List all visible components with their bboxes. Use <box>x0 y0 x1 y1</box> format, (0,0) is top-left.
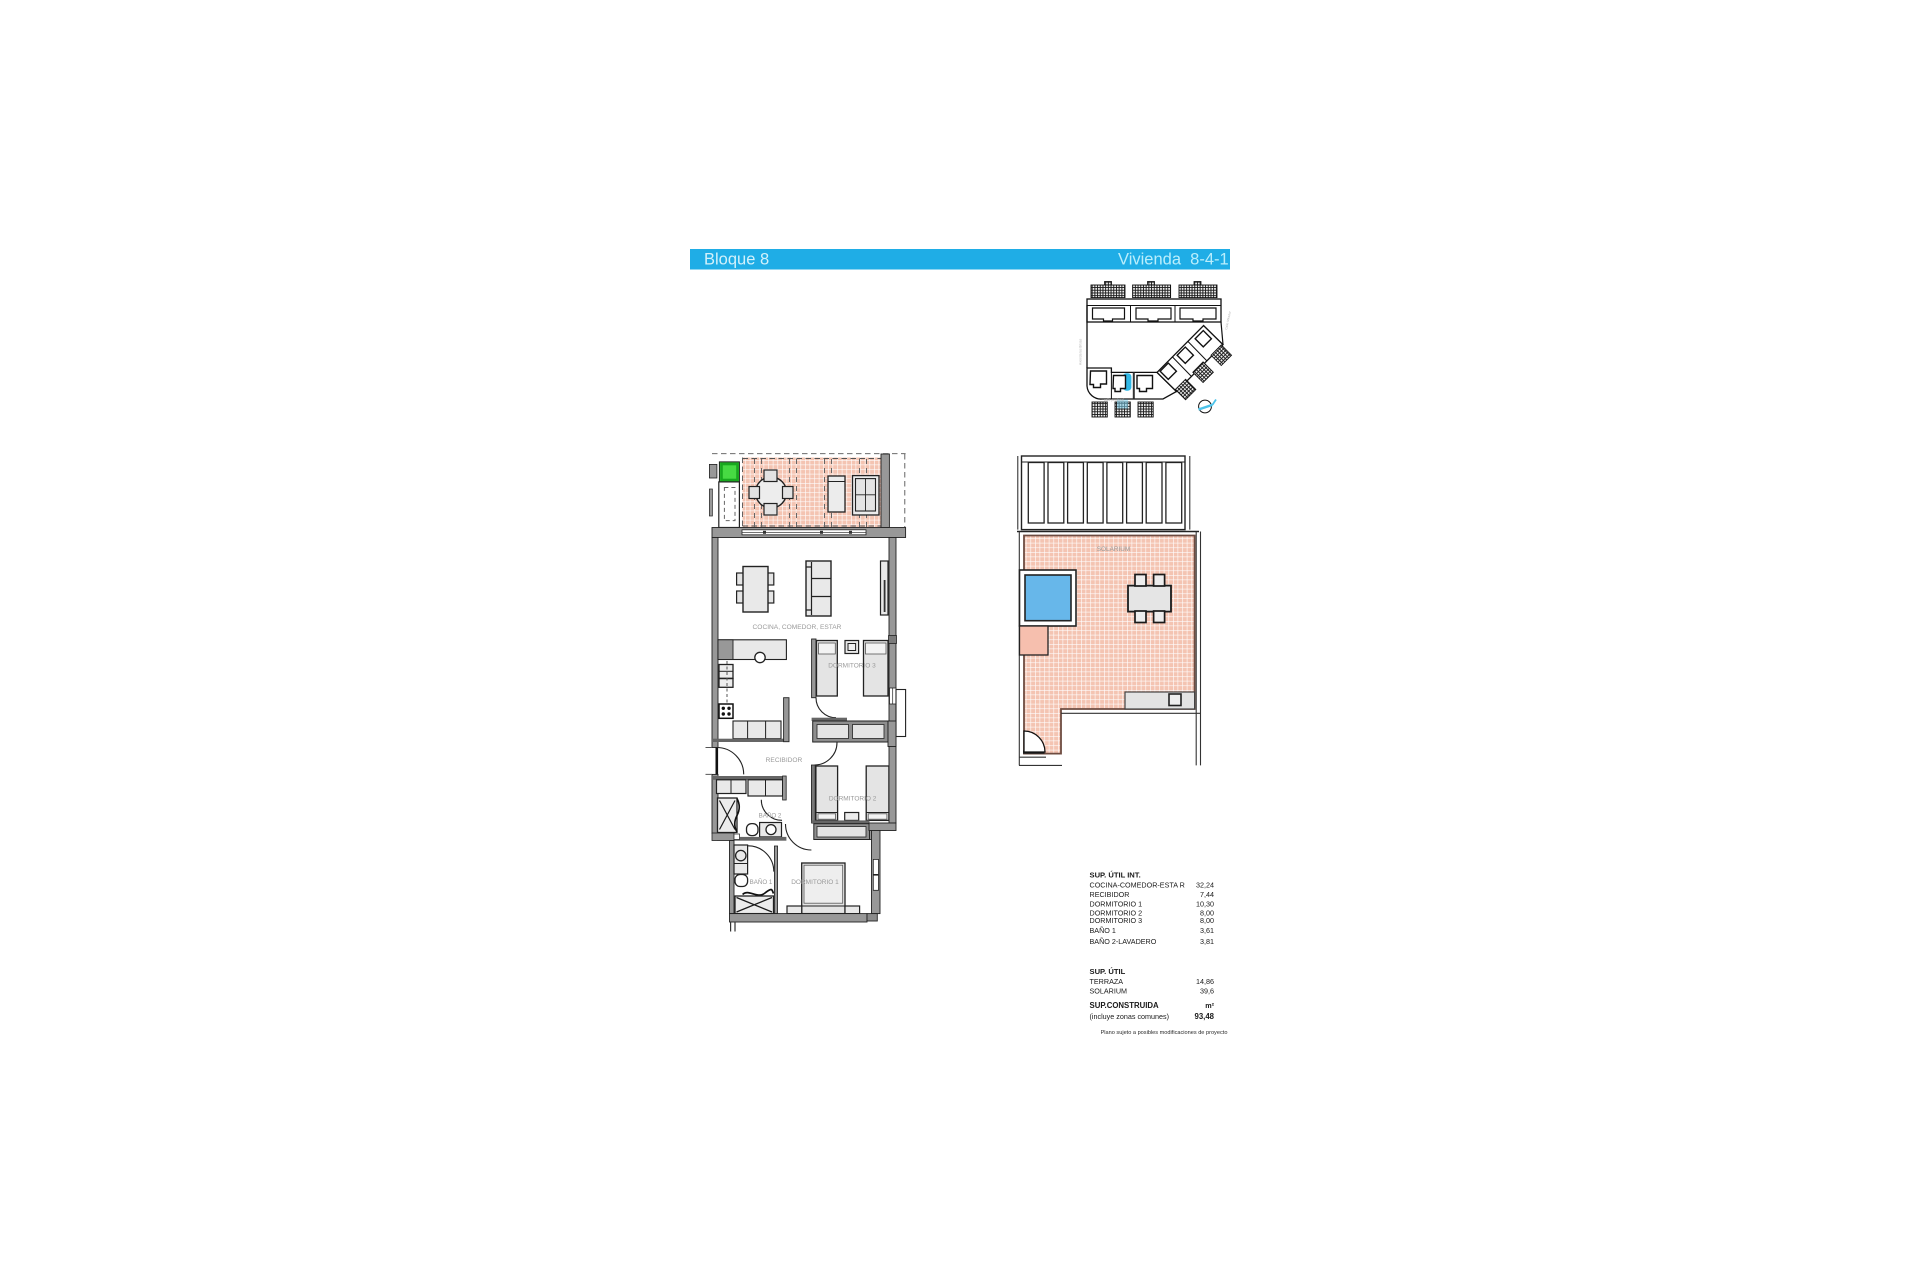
svg-text:SOLARIUM: SOLARIUM <box>1090 986 1128 995</box>
svg-text:DORMITORIO 1: DORMITORIO 1 <box>791 879 839 886</box>
svg-text:SUP. ÚTIL: SUP. ÚTIL <box>1090 967 1126 976</box>
svg-text:32,24: 32,24 <box>1196 880 1214 889</box>
svg-text:3,81: 3,81 <box>1200 937 1214 946</box>
svg-text:BAÑO 2-LAVADERO: BAÑO 2-LAVADERO <box>1090 937 1157 946</box>
svg-text:Vivienda 8-4-1: Vivienda 8-4-1 <box>1118 251 1229 269</box>
svg-text:DORMITORIO 2: DORMITORIO 2 <box>829 796 877 803</box>
svg-text:Plano sujeto a posibles modifi: Plano sujeto a posibles modificaciones d… <box>1101 1030 1228 1036</box>
svg-text:COCINA, COMEDOR, ESTAR: COCINA, COMEDOR, ESTAR <box>753 624 842 631</box>
svg-text:m²: m² <box>1205 1001 1214 1010</box>
svg-text:DORMITORIO 3: DORMITORIO 3 <box>828 663 876 670</box>
svg-text:calle peatonal: calle peatonal <box>1104 398 1124 402</box>
svg-text:Bloque 8: Bloque 8 <box>704 251 769 269</box>
svg-text:7,44: 7,44 <box>1200 890 1214 899</box>
svg-text:93,48: 93,48 <box>1194 1012 1214 1021</box>
svg-text:SUP. ÚTIL INT.: SUP. ÚTIL INT. <box>1090 871 1141 880</box>
svg-text:BAÑO 2: BAÑO 2 <box>759 813 782 820</box>
svg-text:DORMITORIO 3: DORMITORIO 3 <box>1090 916 1143 925</box>
svg-text:39,6: 39,6 <box>1200 986 1214 995</box>
svg-text:8,00: 8,00 <box>1200 916 1214 925</box>
svg-text:RECIBIDOR: RECIBIDOR <box>766 757 803 764</box>
svg-text:COCINA-COMEDOR-ESTA R: COCINA-COMEDOR-ESTA R <box>1090 880 1185 889</box>
svg-text:(incluye zonas comunes): (incluye zonas comunes) <box>1090 1012 1170 1021</box>
svg-text:Avenida las Brisas: Avenida las Brisas <box>1079 338 1083 365</box>
svg-text:BAÑO 1: BAÑO 1 <box>1090 926 1116 935</box>
svg-text:DORMITORIO 1: DORMITORIO 1 <box>1090 900 1143 909</box>
svg-text:SOLARIUM: SOLARIUM <box>1097 546 1130 553</box>
svg-text:14,86: 14,86 <box>1196 977 1214 986</box>
svg-text:RECIBIDOR: RECIBIDOR <box>1090 890 1130 899</box>
svg-text:3,61: 3,61 <box>1200 926 1214 935</box>
svg-text:BAÑO 1: BAÑO 1 <box>750 879 773 886</box>
svg-text:TERRAZA: TERRAZA <box>1090 977 1124 986</box>
svg-text:SUP.CONSTRUIDA: SUP.CONSTRUIDA <box>1090 1001 1160 1010</box>
svg-text:10,30: 10,30 <box>1196 900 1214 909</box>
